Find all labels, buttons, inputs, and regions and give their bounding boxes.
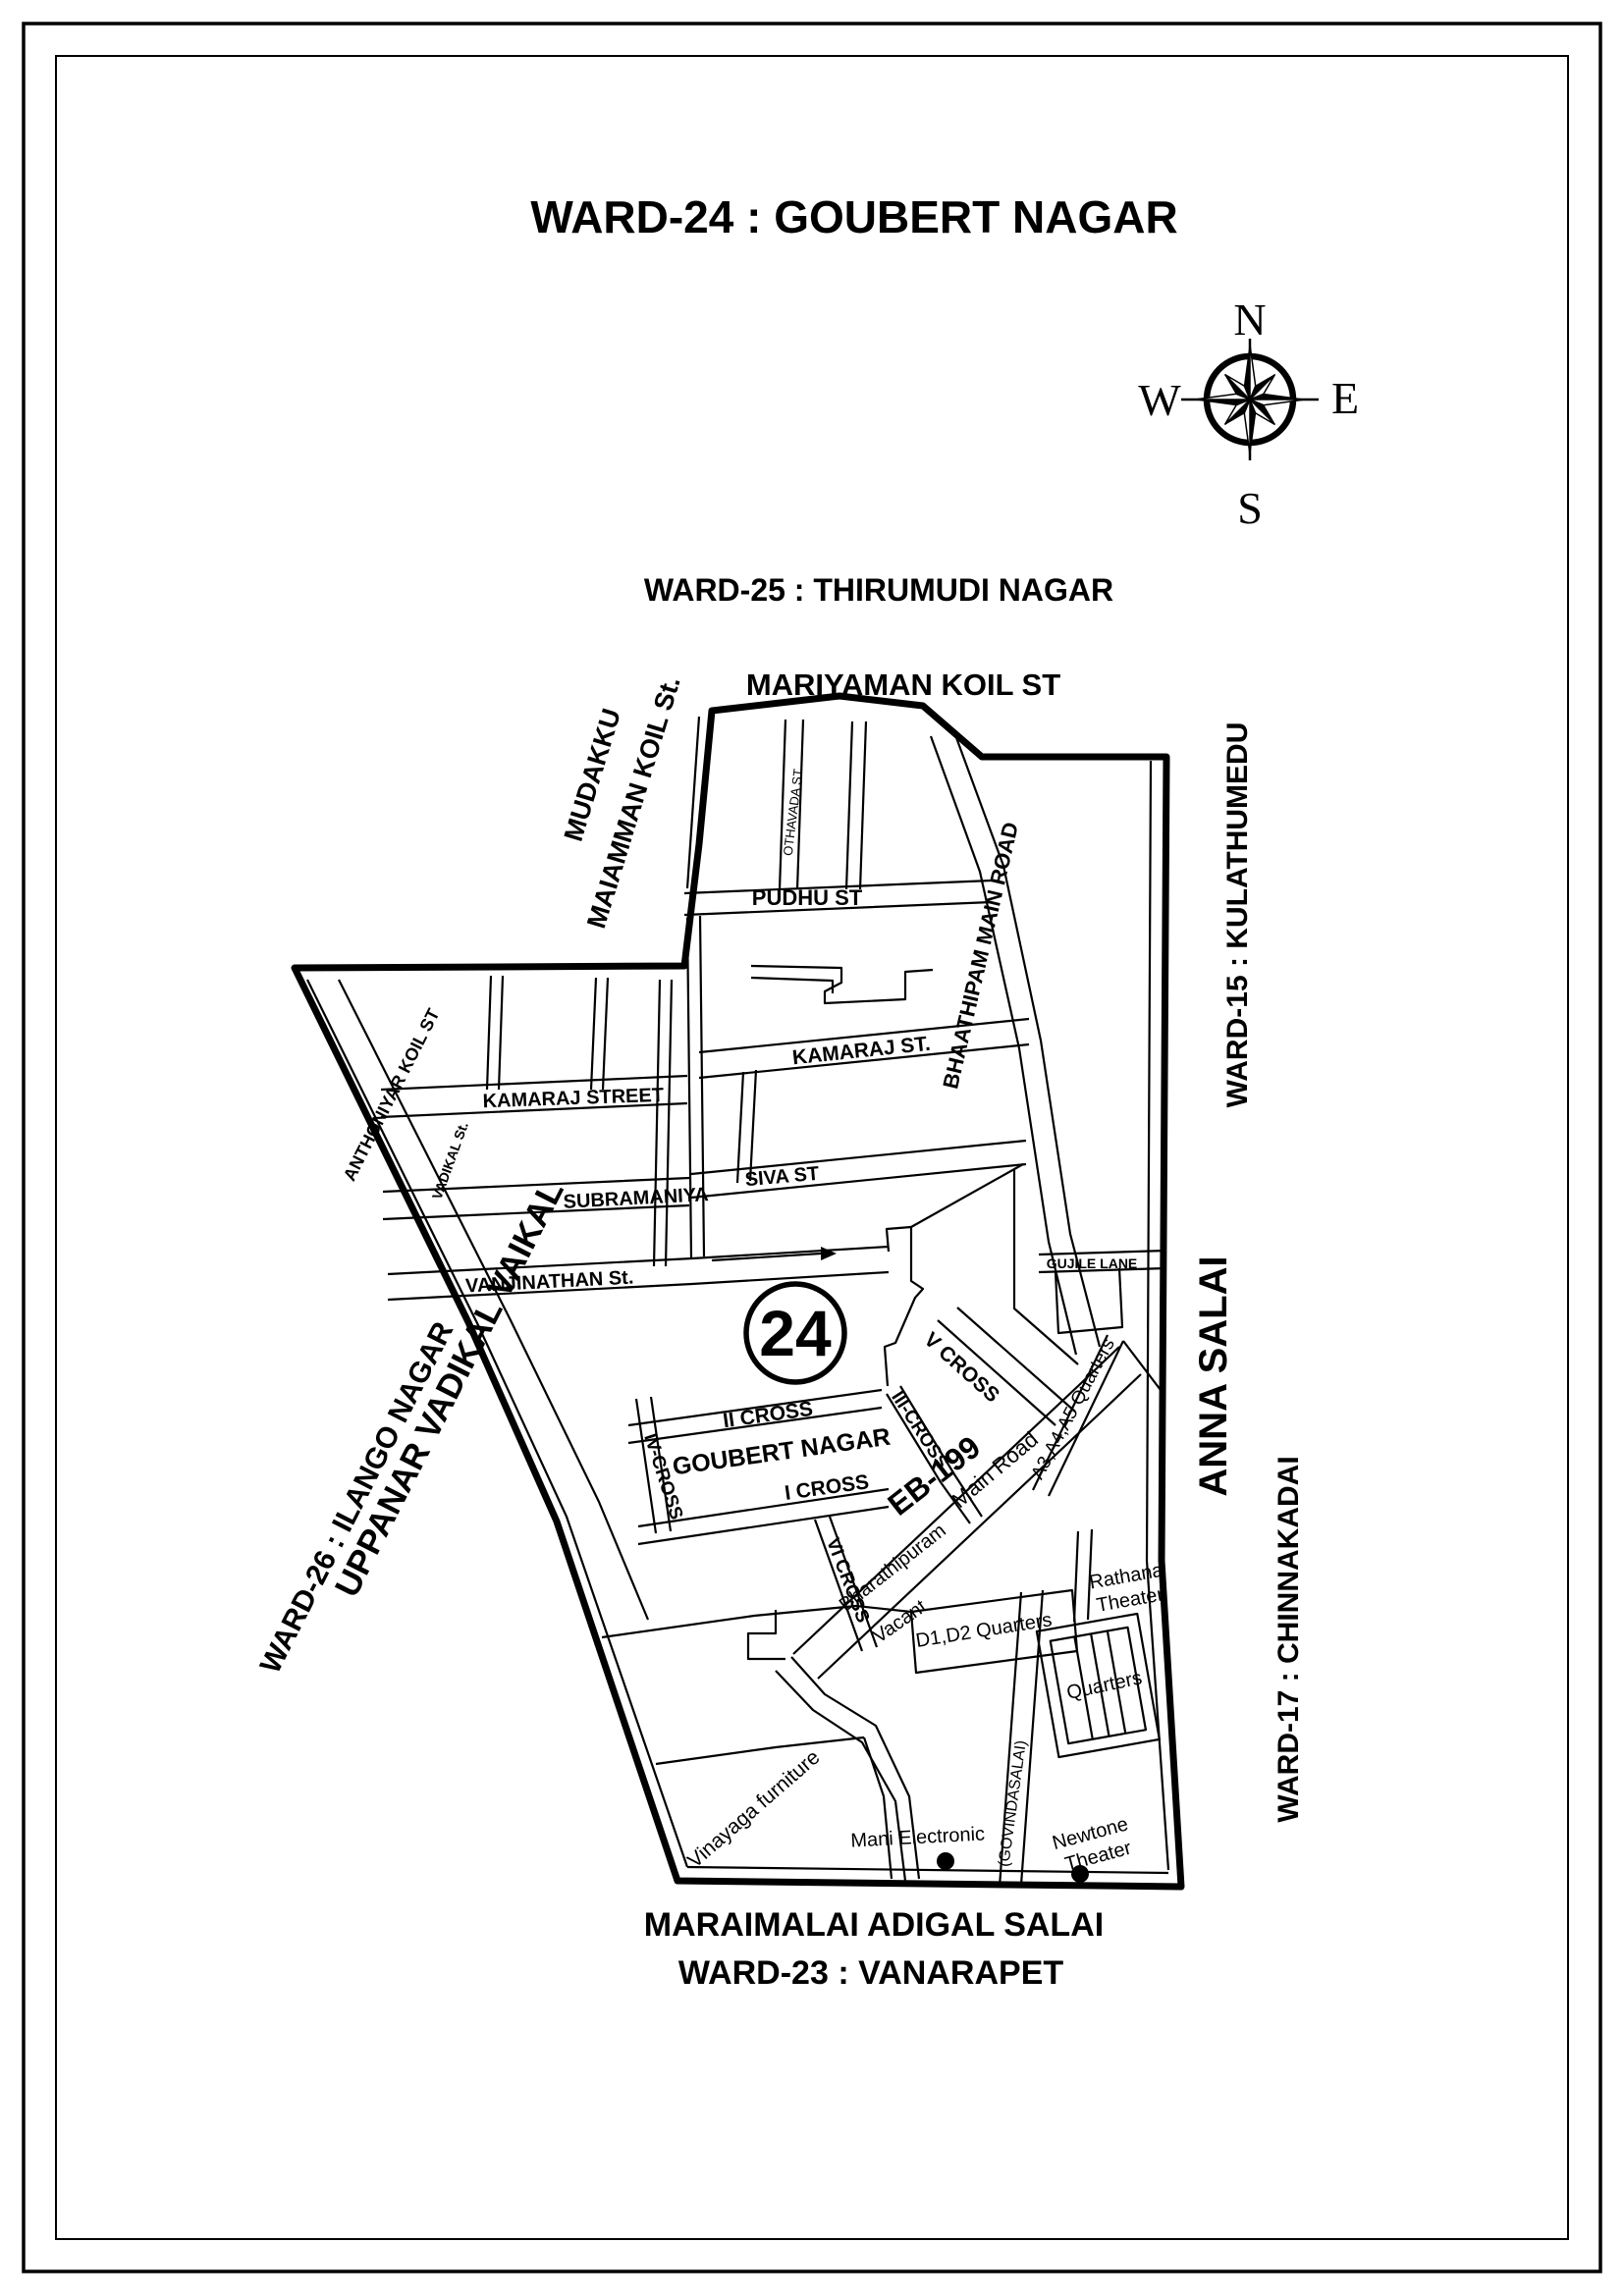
one-way-arrow-icon	[821, 1247, 837, 1260]
road-gujile-block	[1056, 1268, 1122, 1333]
ward-map: WARD-24 : GOUBERT NAGAR N S W E	[0, 0, 1624, 2296]
road-central-left-edge	[687, 916, 704, 1258]
block-24-outline	[885, 1227, 923, 1386]
ward-boundary	[295, 696, 1181, 1887]
label-kamaraj-st-right: KAMARAJ ST.	[791, 1033, 932, 1070]
compass-rose-icon: N S W E	[1138, 294, 1359, 533]
road-left-v3	[654, 980, 672, 1266]
label-subramaniya: SUBRAMANIYA	[563, 1184, 709, 1213]
road-neck-vertical	[846, 721, 866, 889]
label-pudhu-st: PUDHU ST	[752, 885, 863, 910]
road-siva-st	[691, 1141, 1026, 1198]
label-ward26: WARD-26 : ILANGO NAGAR	[254, 1316, 460, 1679]
mani-electronic-dot	[937, 1852, 954, 1870]
label-ward23: WARD-23 : VANARAPET	[678, 1954, 1064, 1992]
ward-number-text: 24	[759, 1297, 832, 1369]
label-i-cross: I CROSS	[784, 1470, 871, 1505]
compass-north-label: N	[1233, 294, 1266, 345]
page-title: WARD-24 : GOUBERT NAGAR	[530, 191, 1177, 242]
road-step-vacant	[748, 1610, 785, 1659]
roads	[307, 717, 1168, 1887]
label-ward25: WARD-25 : THIRUMUDI NAGAR	[644, 572, 1113, 608]
road-vinayaga-lower	[656, 1737, 864, 1764]
compass-south-label: S	[1237, 483, 1263, 533]
ward-number-badge: 24	[746, 1284, 844, 1382]
label-mariyaman-koil-st: MARIYAMAN KOIL ST	[746, 667, 1060, 702]
label-d1d2-quarters: D1,D2 Quarters	[914, 1609, 1054, 1652]
label-ward17: WARD-17 : CHINNAKADAI	[1272, 1456, 1305, 1822]
label-ward15: WARD-15 : KULATHUMEDU	[1221, 722, 1254, 1108]
label-ii-cross: II CROSS	[722, 1398, 814, 1433]
road-to-bottom	[864, 1737, 892, 1879]
road-step-block	[751, 966, 933, 1003]
road-left-v2	[591, 978, 608, 1090]
label-kamaraj-street-left: KAMARAJ STREET	[482, 1085, 664, 1112]
label-vinayaga-furniture: Vinayaga furniture	[683, 1746, 824, 1873]
label-maraimalai-adigal-salai: MARAIMALAI ADIGAL SALAI	[644, 1906, 1104, 1944]
label-quarters: Quarters	[1064, 1667, 1144, 1704]
label-gujile-lane: GUJILE LANE	[1047, 1255, 1138, 1271]
road-center-connector	[737, 1070, 756, 1183]
compass-west-label: W	[1138, 375, 1181, 425]
compass-east-label: E	[1331, 373, 1359, 423]
label-mani-electronic: Mani Electronic	[850, 1823, 986, 1851]
label-uppanar: UPPANAR VADIKAL VAIKAL	[328, 1175, 571, 1603]
label-anna-salai: ANNA SALAI	[1192, 1255, 1235, 1496]
road-left-v1	[487, 976, 503, 1090]
